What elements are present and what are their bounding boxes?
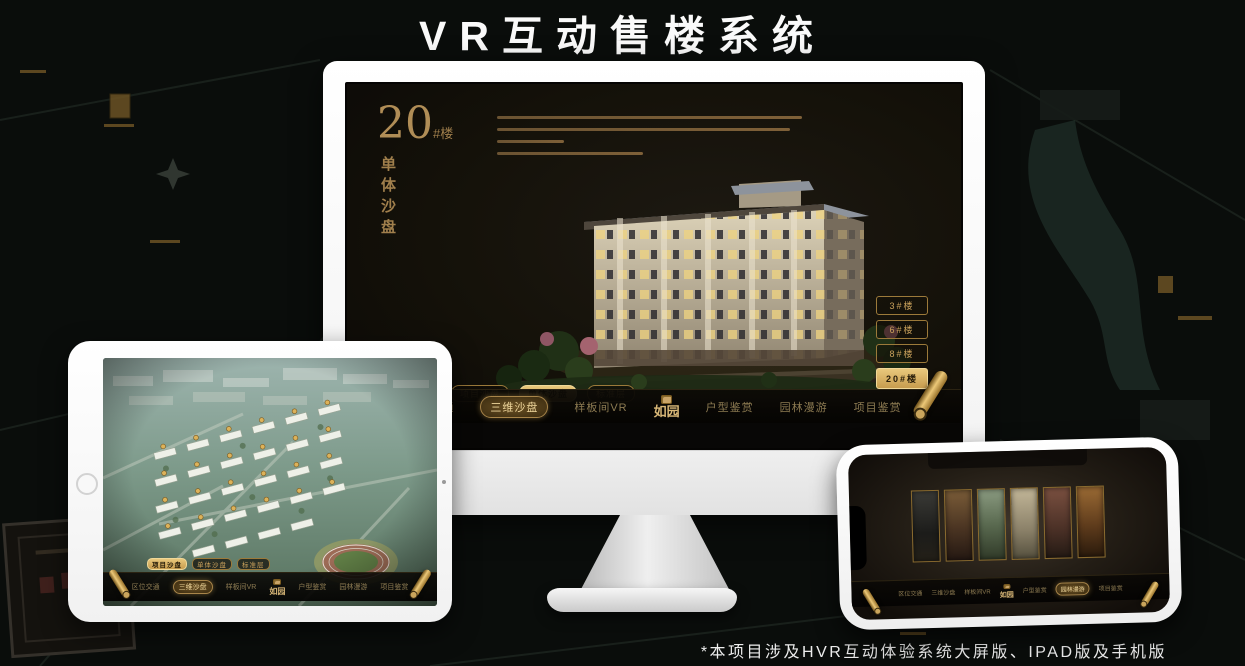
subtab-single-sandbox[interactable]: 单体沙盘 [192, 558, 232, 570]
seal-icon [1003, 583, 1010, 588]
building-number-suffix: #楼 [433, 126, 453, 141]
nav-item-showroom-vr[interactable]: 样板间VR [574, 399, 627, 415]
heading-vertical-label: 单体沙盘 [377, 156, 398, 276]
nav-item-3d-sandbox[interactable]: 三维沙盘 [173, 580, 213, 594]
poster-canvas: VR互动售楼系统 *本项目涉及HVR互动体验系统大屏版、IPAD版及手机版 20… [0, 0, 1245, 666]
phone-notch [849, 505, 867, 569]
nav-item-project-gallery[interactable]: 项目鉴赏 [380, 582, 408, 592]
river-shape [1028, 120, 1160, 390]
nav-item-showroom-vr[interactable]: 样板间VR [964, 587, 991, 597]
compass-star [156, 158, 190, 190]
gallery-panel[interactable] [911, 490, 941, 563]
page-title: VR互动售楼系统 [0, 2, 1245, 62]
phone-screen: 区位交通 三维沙盘 样板间VR 如园 户型鉴赏 园林漫游 项目鉴赏 [848, 447, 1170, 620]
nav-item-floorplans[interactable]: 户型鉴赏 [706, 399, 754, 415]
camera-dot [442, 480, 446, 484]
nav-item-location[interactable]: 区位交通 [132, 582, 160, 592]
nav-item-garden-tour[interactable]: 园林漫游 [1055, 582, 1089, 596]
nav-item-showroom-vr[interactable]: 样板间VR [226, 582, 257, 592]
ceiling-beam-decoration [927, 449, 1086, 469]
subtab-standard-floor[interactable]: 标准层 [237, 558, 270, 570]
tablet-screen: 项目沙盘 单体沙盘 标准层 区位交通 三维沙盘 样板间VR 如园 户型鉴赏 园林… [103, 358, 437, 606]
gallery-panel[interactable] [1010, 487, 1040, 560]
building-button-20[interactable]: 20#楼 [876, 368, 928, 389]
building-button-3[interactable]: 3#楼 [876, 296, 928, 315]
phone-navbar: 区位交通 三维沙盘 样板间VR 如园 户型鉴赏 园林漫游 项目鉴赏 [851, 573, 1170, 607]
footnote-text: *本项目涉及HVR互动体验系统大屏版、IPAD版及手机版 [701, 638, 1167, 662]
nav-item-project-gallery[interactable]: 项目鉴赏 [1099, 583, 1123, 593]
subtab-project-sandbox[interactable]: 项目沙盘 [147, 558, 187, 570]
brand-logo: 如园 [999, 583, 1013, 597]
tablet-device: 项目沙盘 单体沙盘 标准层 区位交通 三维沙盘 样板间VR 如园 户型鉴赏 园林… [68, 341, 452, 622]
nav-item-location[interactable]: 区位交通 [898, 588, 922, 598]
gallery-panel[interactable] [977, 488, 1007, 561]
nav-item-project-gallery[interactable]: 项目鉴赏 [854, 399, 902, 415]
gallery-panel[interactable] [1076, 486, 1106, 559]
nav-item-garden-tour[interactable]: 园林漫游 [780, 399, 828, 415]
nav-item-3d-sandbox[interactable]: 三维沙盘 [931, 587, 955, 597]
gallery-panel[interactable] [944, 489, 974, 562]
gallery-panel[interactable] [1043, 486, 1073, 559]
tablet-navbar: 区位交通 三维沙盘 样板间VR 如园 户型鉴赏 园林漫游 项目鉴赏 [103, 572, 437, 601]
building-selector: 3#楼 6#楼 8#楼 20#楼 [876, 296, 928, 389]
seal-icon [273, 579, 281, 585]
scene-gallery [911, 486, 1106, 563]
tablet-subtabs: 项目沙盘 单体沙盘 标准层 [147, 558, 270, 570]
brand-logo: 如园 [654, 395, 680, 419]
nav-item-garden-tour[interactable]: 园林漫游 [339, 582, 367, 592]
building-button-6[interactable]: 6#楼 [876, 320, 928, 339]
seal-icon [661, 395, 672, 404]
nav-item-3d-sandbox[interactable]: 三维沙盘 [480, 396, 548, 418]
monitor-base [547, 588, 737, 612]
home-button[interactable] [76, 473, 98, 495]
phone-device: 区位交通 三维沙盘 样板间VR 如园 户型鉴赏 园林漫游 项目鉴赏 [836, 437, 1183, 631]
building-number: 20 [377, 98, 433, 149]
nav-item-floorplans[interactable]: 户型鉴赏 [1023, 585, 1047, 595]
building-button-8[interactable]: 8#楼 [876, 344, 928, 363]
nav-item-floorplans[interactable]: 户型鉴赏 [298, 582, 326, 592]
brand-logo: 如园 [269, 579, 285, 595]
